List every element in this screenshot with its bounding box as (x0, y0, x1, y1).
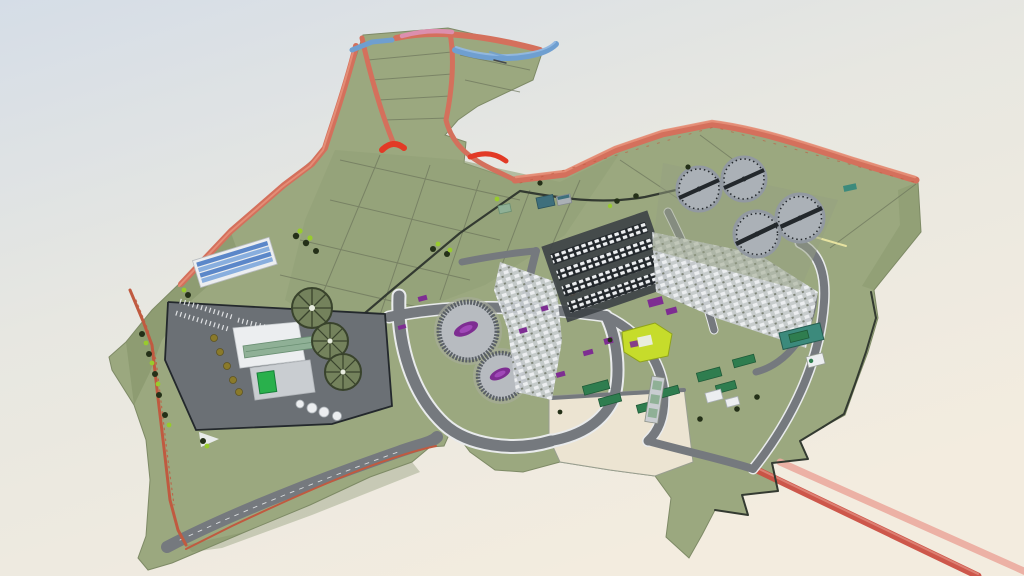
model-viewport[interactable] (0, 0, 1024, 576)
clarifier-tank-4 (734, 211, 780, 257)
site-render (0, 0, 1024, 576)
clarifier-tank-2 (722, 157, 766, 201)
radial-tank-3 (325, 354, 361, 390)
clarifier-tank-3 (776, 194, 824, 242)
radial-tank-1 (292, 288, 332, 328)
green-building (257, 371, 277, 394)
digester-tank-1 (439, 302, 497, 360)
clarifier-tank-1 (677, 167, 721, 211)
